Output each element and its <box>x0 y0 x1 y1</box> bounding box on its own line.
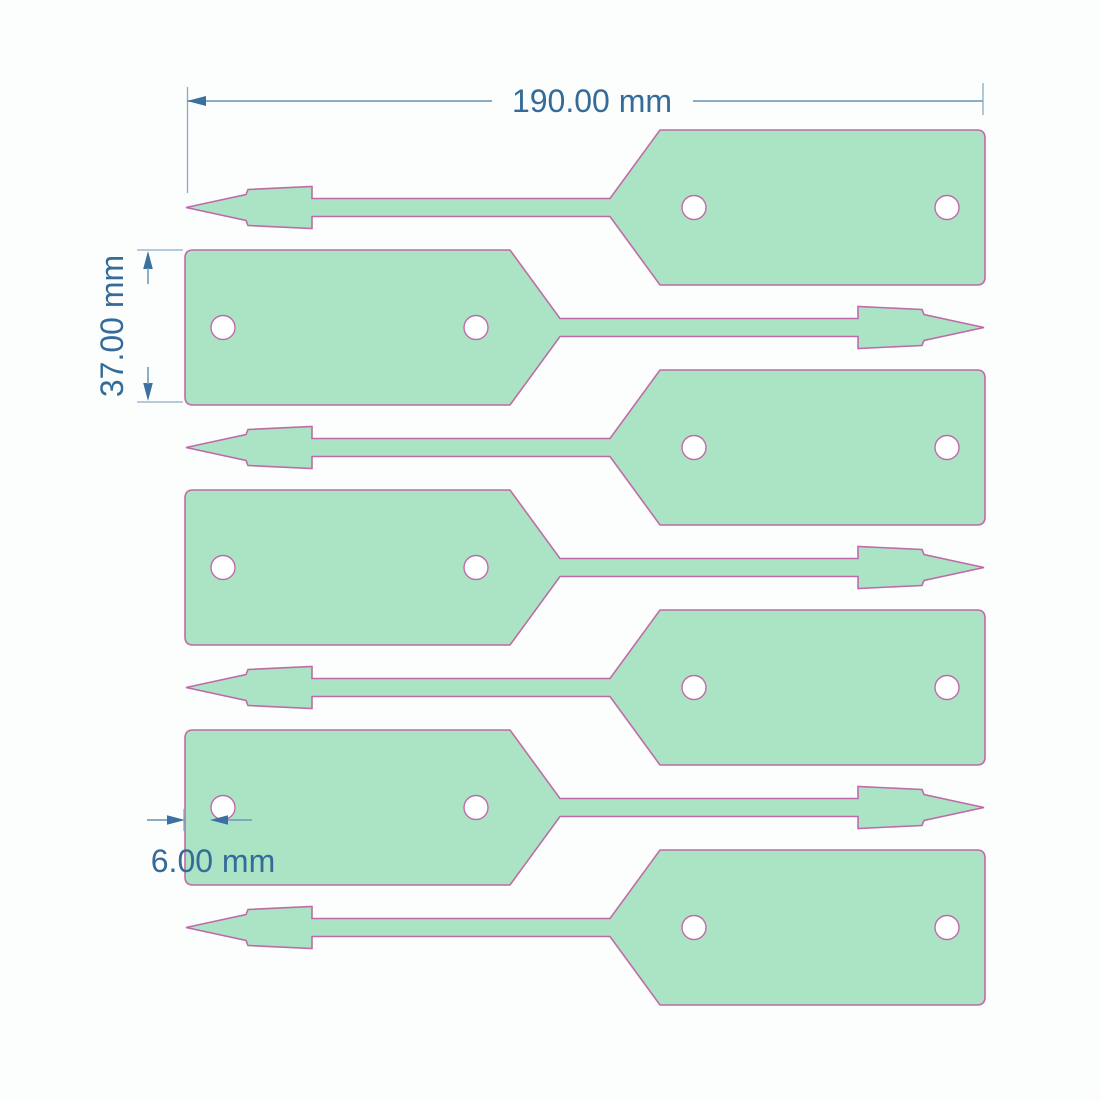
tag-hole <box>211 796 235 820</box>
tag-hole <box>464 796 488 820</box>
tag-hole <box>682 436 706 460</box>
dim-arrowhead-right <box>167 815 185 825</box>
dimension-edge-to-hole-label[interactable]: 6.00 mm <box>151 843 275 879</box>
tag-hole <box>211 556 235 580</box>
tag-hole <box>935 196 959 220</box>
drawing-svg: 190.00 mm 37.00 mm 6.00 mm <box>0 0 1100 1100</box>
dim-arrowhead-down <box>143 383 153 401</box>
cad-viewport: 190.00 mm 37.00 mm 6.00 mm <box>0 0 1100 1100</box>
tag-hole <box>682 676 706 700</box>
tags-layer <box>185 130 985 1005</box>
tag-hole <box>682 196 706 220</box>
tag-hole <box>682 916 706 940</box>
tag-hole <box>464 316 488 340</box>
tag-hole <box>935 916 959 940</box>
dim-arrowhead-left <box>187 96 206 106</box>
tag-hole <box>464 556 488 580</box>
tag-hole <box>211 316 235 340</box>
dimension-height-label[interactable]: 37.00 mm <box>94 255 130 397</box>
tag-hole <box>935 676 959 700</box>
dimension-width-label[interactable]: 190.00 mm <box>512 83 672 119</box>
dimension-height[interactable]: 37.00 mm <box>94 250 183 402</box>
tag-hole <box>935 436 959 460</box>
dim-arrowhead-up <box>143 251 153 269</box>
